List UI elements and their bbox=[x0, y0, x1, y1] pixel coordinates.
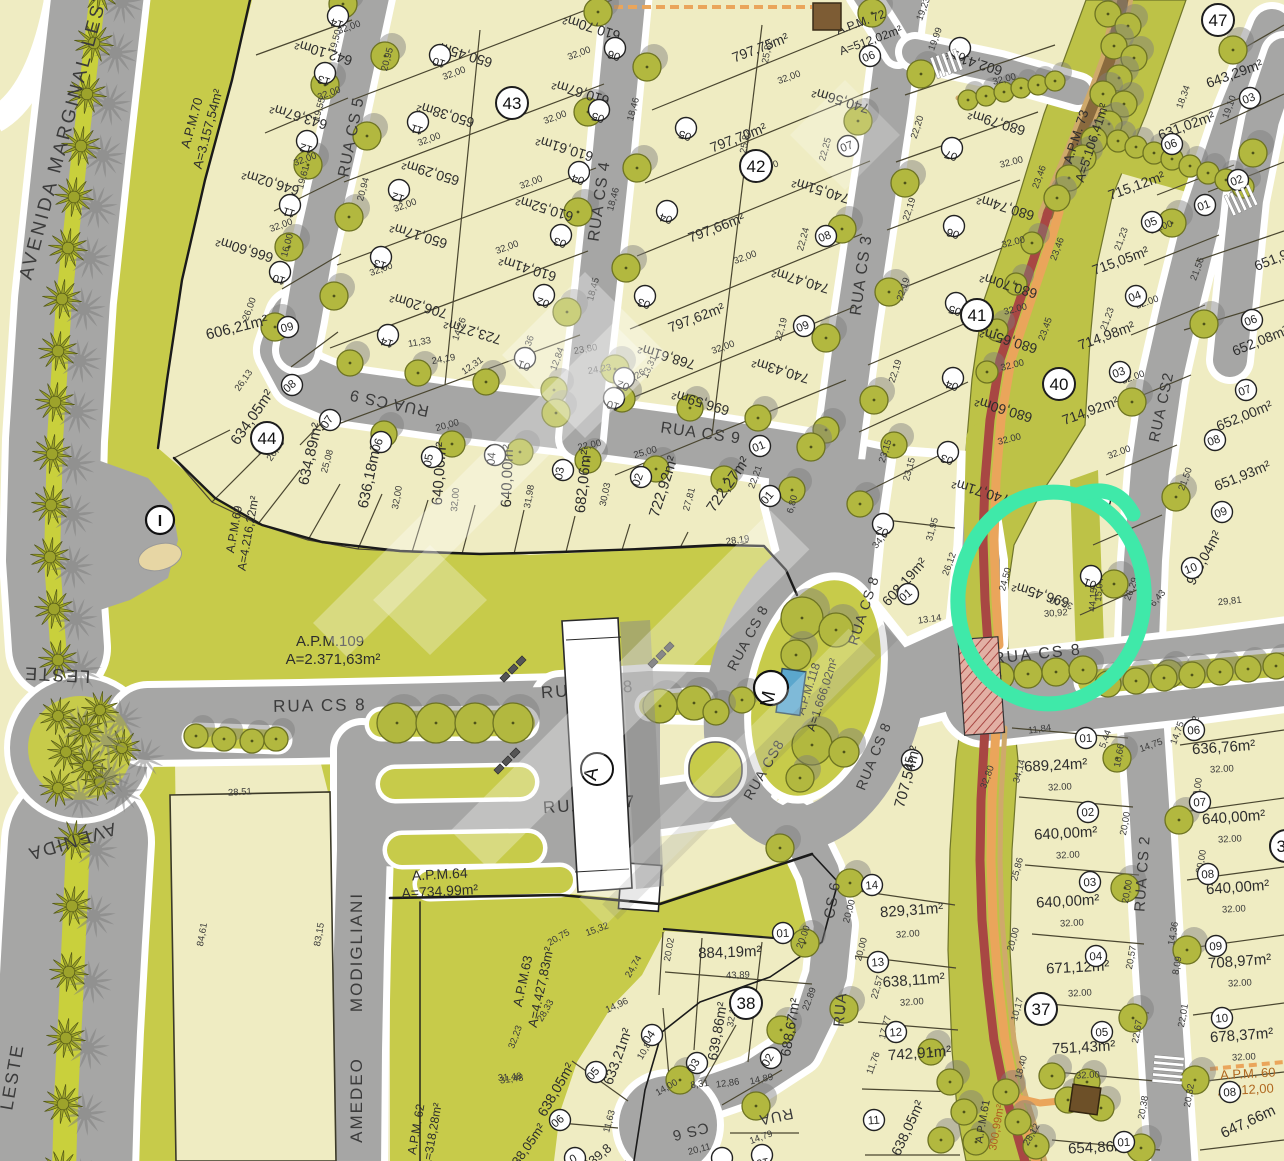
svg-text:640,00m²: 640,00m² bbox=[1036, 891, 1100, 911]
svg-text:30,92: 30,92 bbox=[1044, 607, 1068, 620]
svg-text:28.51: 28.51 bbox=[228, 786, 252, 798]
svg-text:03: 03 bbox=[553, 466, 567, 481]
svg-text:06: 06 bbox=[1187, 725, 1201, 738]
svg-text:43,89: 43,89 bbox=[726, 970, 750, 982]
svg-text:01: 01 bbox=[1117, 1137, 1130, 1150]
svg-text:AMEDEO: AMEDEO bbox=[347, 1057, 366, 1143]
svg-text:47: 47 bbox=[1209, 11, 1228, 30]
svg-text:01: 01 bbox=[776, 928, 789, 941]
svg-text:07: 07 bbox=[1193, 797, 1207, 810]
svg-text:A=2.371,63m²: A=2.371,63m² bbox=[286, 651, 381, 668]
svg-text:32.00: 32.00 bbox=[896, 928, 920, 941]
svg-text:09: 09 bbox=[1209, 941, 1223, 954]
svg-text:42: 42 bbox=[747, 157, 766, 176]
svg-text:38: 38 bbox=[737, 994, 756, 1013]
svg-text:32.00: 32.00 bbox=[1218, 833, 1242, 845]
svg-text:40: 40 bbox=[1050, 375, 1069, 394]
svg-text:32.00: 32.00 bbox=[1210, 763, 1234, 775]
svg-text:14: 14 bbox=[865, 880, 879, 893]
svg-text:44: 44 bbox=[258, 429, 277, 448]
svg-text:884,19m²: 884,19m² bbox=[698, 943, 762, 962]
svg-text:689,24m²: 689,24m² bbox=[1024, 755, 1088, 775]
svg-text:03: 03 bbox=[1083, 877, 1096, 890]
svg-text:A.P.M.64: A.P.M.64 bbox=[411, 865, 468, 884]
svg-text:11: 11 bbox=[867, 1115, 880, 1128]
svg-text:31.48: 31.48 bbox=[497, 1071, 522, 1084]
svg-text:32.00: 32.00 bbox=[1222, 903, 1246, 915]
svg-text:RUA: RUA bbox=[831, 992, 851, 1028]
svg-text:02: 02 bbox=[1081, 807, 1094, 820]
svg-text:640,00m²: 640,00m² bbox=[1034, 823, 1098, 843]
svg-text:32.00: 32.00 bbox=[1068, 987, 1092, 999]
svg-text:36: 36 bbox=[1277, 837, 1284, 856]
svg-text:04: 04 bbox=[1089, 951, 1103, 964]
svg-text:32.00: 32.00 bbox=[1228, 977, 1252, 989]
svg-text:32.00: 32.00 bbox=[1048, 781, 1072, 793]
svg-text:32.00: 32.00 bbox=[1232, 1051, 1256, 1063]
svg-text:13: 13 bbox=[871, 957, 885, 970]
svg-text:MODIGLIANI: MODIGLIANI bbox=[347, 892, 366, 1012]
svg-text:05: 05 bbox=[1095, 1027, 1108, 1040]
svg-text:10: 10 bbox=[1215, 1013, 1229, 1026]
svg-text:08: 08 bbox=[1201, 869, 1215, 882]
svg-text:08: 08 bbox=[1223, 1087, 1237, 1100]
svg-text:I: I bbox=[158, 513, 162, 530]
svg-text:05: 05 bbox=[422, 453, 436, 468]
svg-text:LESTE: LESTE bbox=[23, 663, 91, 686]
svg-text:A.P.M. 60: A.P.M. 60 bbox=[1220, 1065, 1276, 1083]
svg-text:32.00: 32.00 bbox=[900, 996, 924, 1009]
svg-text:32.00: 32.00 bbox=[1056, 849, 1080, 861]
svg-text:12: 12 bbox=[889, 1027, 903, 1040]
svg-text:RUA CS 8: RUA CS 8 bbox=[273, 695, 367, 716]
svg-text:37: 37 bbox=[1032, 1000, 1051, 1019]
svg-text:01: 01 bbox=[1079, 733, 1092, 746]
svg-text:41: 41 bbox=[968, 306, 987, 325]
svg-text:32.00: 32.00 bbox=[1076, 1069, 1100, 1081]
svg-text:32.00: 32.00 bbox=[1060, 917, 1084, 929]
svg-text:43: 43 bbox=[503, 94, 522, 113]
